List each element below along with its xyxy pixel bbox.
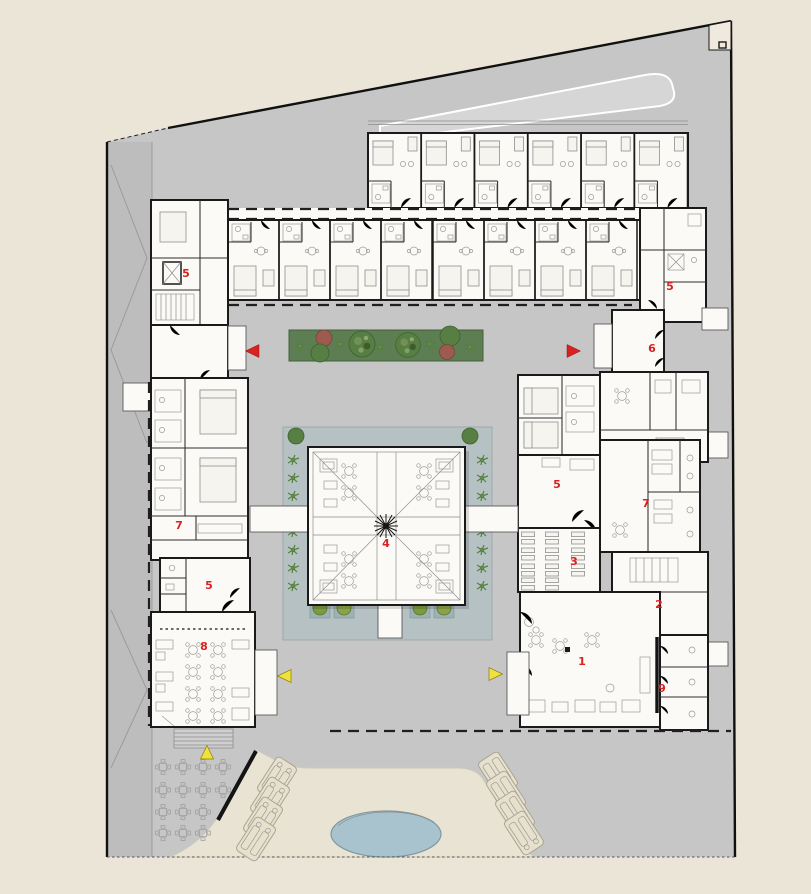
east-wing (518, 372, 708, 730)
courtyard-walk-east (594, 324, 612, 368)
pavilion-south-walk (378, 605, 402, 638)
room-number-label-room-7-west: 7 (175, 519, 183, 532)
room-number-label-room-5-east-wing: 5 (553, 478, 561, 491)
courtyard-walk-west (228, 326, 246, 370)
terrace-8 (151, 612, 255, 727)
room-number-label-room-5-west-core: 5 (182, 267, 190, 280)
room-number-label-room-6: 6 (648, 342, 656, 355)
south-walk-west (255, 650, 277, 715)
room-number-label-room-8: 8 (200, 640, 208, 653)
site-plan-canvas: 1234555567789 (0, 0, 811, 894)
room-number-label-room-3: 3 (570, 555, 578, 568)
spa-room-7 (600, 440, 700, 552)
room-number-label-room-9: 9 (658, 682, 666, 695)
room-number-label-room-5-east-core: 5 (666, 280, 674, 293)
planting-strip (289, 326, 483, 362)
south-walk-east (507, 652, 529, 715)
pavilion-star (374, 514, 398, 538)
west-road-strip (108, 142, 152, 857)
lobby-1 (520, 592, 660, 727)
west-core (151, 200, 228, 325)
north-corridor (228, 208, 688, 220)
room-number-label-room-5-west-wing: 5 (205, 579, 213, 592)
room-number-label-room-2: 2 (655, 598, 663, 611)
bridge-west (250, 506, 308, 532)
boundary-notch (709, 21, 731, 50)
floor-plan-drawing: 1234555567789 (0, 0, 811, 894)
room-number-label-room-7-east: 7 (642, 497, 650, 510)
west-entrance-bump (123, 383, 151, 411)
room-number-label-room-1: 1 (578, 655, 586, 668)
central-pavilion-4 (308, 447, 469, 609)
east-core (640, 208, 706, 322)
entry-steps (174, 729, 233, 748)
bridge-east (465, 506, 518, 532)
room-number-label-room-4: 4 (382, 537, 390, 550)
east-bump-1 (702, 308, 728, 330)
